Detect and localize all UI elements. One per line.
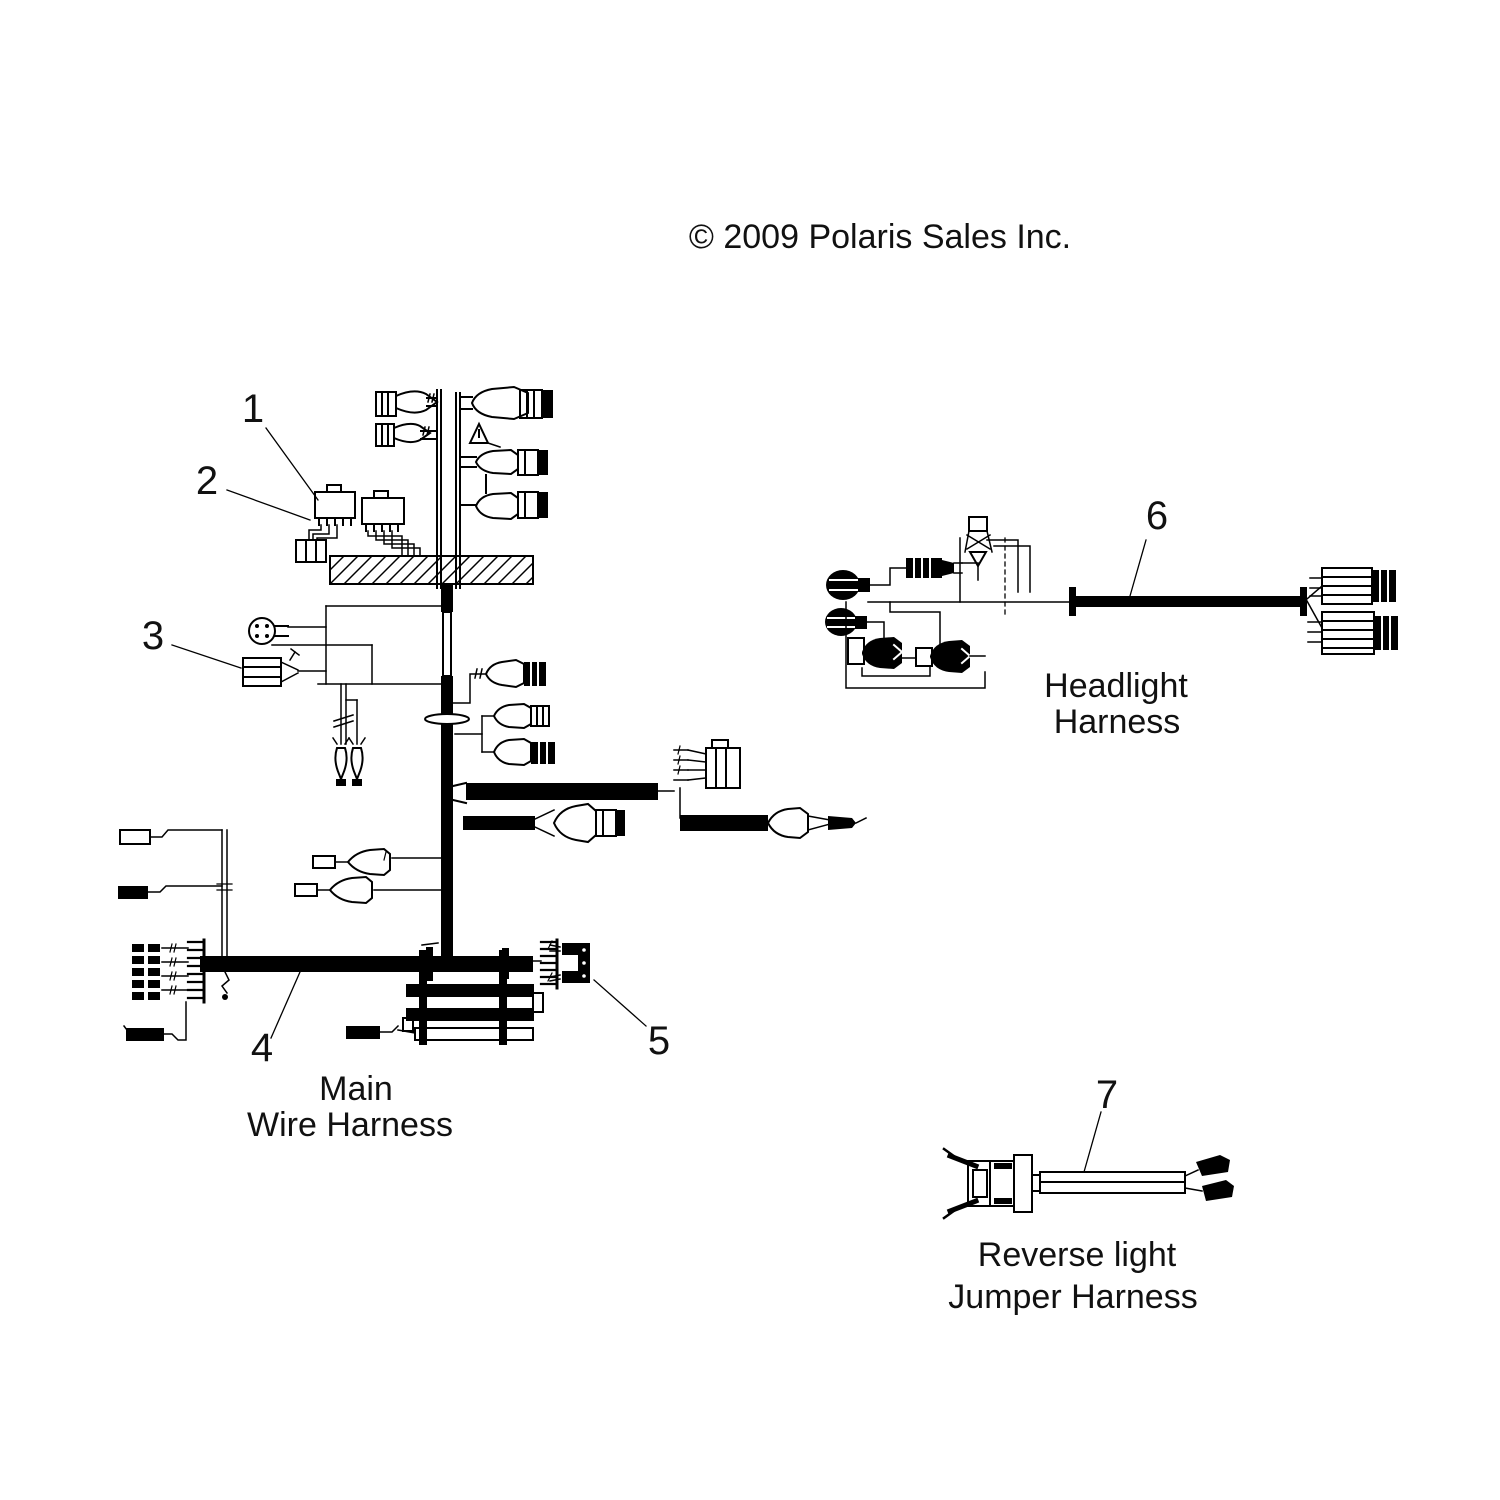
- ring-terminal-group: [243, 606, 441, 686]
- reverse-jumper-label-line1: Reverse light: [978, 1238, 1176, 1272]
- headlight-callout-leader: [1130, 540, 1146, 596]
- relay-connectors: [296, 485, 420, 562]
- top-connectors: [376, 387, 553, 519]
- parts-diagram-page: © 2009 Polaris Sales Inc. 1 2 3 4 5 6 7 …: [0, 0, 1500, 1500]
- reverse-jumper-drawing: [944, 1112, 1234, 1218]
- main-trunk-lower: [441, 584, 453, 972]
- branch-connectors-right: [453, 660, 555, 765]
- callout-3: 3: [142, 616, 164, 656]
- mid-fork-terminals: [295, 849, 441, 903]
- reverse-callout-leader: [1084, 1112, 1101, 1172]
- comb-connector-left: [124, 940, 204, 1041]
- callout-4: 4: [251, 1028, 273, 1068]
- main-harness-label-line2: Wire Harness: [247, 1108, 453, 1142]
- main-harness-label-line1: Main: [319, 1072, 393, 1106]
- headlight-cluster: [825, 517, 1070, 688]
- headlight-harness-label-line1: Headlight: [1044, 669, 1188, 703]
- hatched-conduit: [330, 556, 533, 584]
- trunk-collar: [425, 714, 469, 724]
- warning-triangle-icon: [470, 424, 500, 447]
- left-spade-terminals: [118, 830, 232, 956]
- headlight-harness-label-line2: Harness: [1054, 705, 1181, 739]
- thick-branch: [453, 740, 866, 842]
- callout-2: 2: [196, 461, 218, 501]
- headlight-cable: [1069, 587, 1307, 616]
- callout-1: 1: [242, 389, 264, 429]
- copyright-text: © 2009 Polaris Sales Inc.: [689, 220, 1071, 254]
- callout-7: 7: [1096, 1075, 1118, 1115]
- headlight-right-connectors: [1307, 568, 1398, 654]
- callout-6: 6: [1146, 496, 1168, 536]
- hanging-bullet-terminals: [333, 684, 365, 786]
- main-harness-drawing: [118, 387, 866, 1045]
- reverse-jumper-label-line2: Jumper Harness: [948, 1280, 1197, 1314]
- callout-5: 5: [648, 1021, 670, 1061]
- headlight-harness-drawing: [825, 517, 1398, 688]
